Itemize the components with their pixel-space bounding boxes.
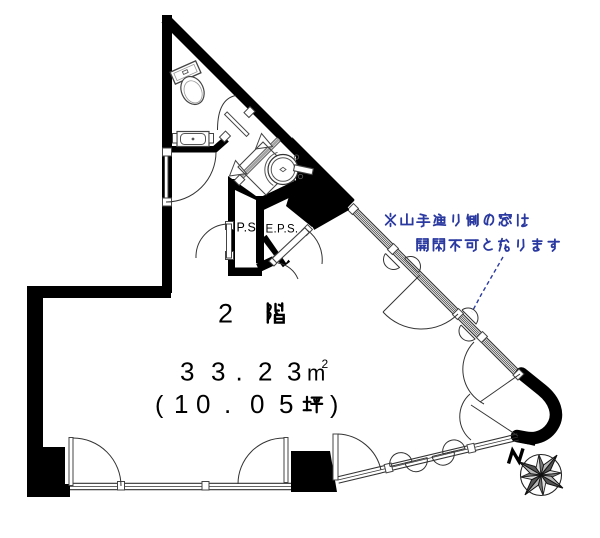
svg-text:): ) — [330, 391, 338, 419]
svg-text:P.S.: P.S. — [237, 221, 261, 235]
svg-text:3: 3 — [180, 357, 194, 387]
svg-text:3: 3 — [287, 357, 301, 387]
svg-text:0: 0 — [250, 389, 264, 419]
svg-text:.: . — [224, 389, 231, 419]
svg-text:E.P.S.: E.P.S. — [266, 224, 299, 236]
svg-text:3: 3 — [211, 357, 225, 387]
svg-text:2: 2 — [258, 357, 272, 387]
svg-text:.: . — [236, 357, 243, 387]
svg-text:0: 0 — [196, 389, 210, 419]
svg-text:1: 1 — [174, 389, 188, 419]
svg-text:5: 5 — [279, 389, 293, 419]
svg-text:2: 2 — [322, 357, 329, 371]
svg-text:2: 2 — [218, 299, 233, 329]
svg-text:(: ( — [155, 391, 164, 419]
